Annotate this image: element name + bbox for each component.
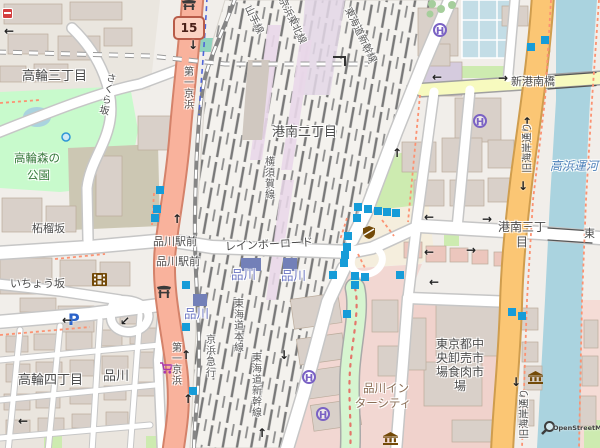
helipad-icon: H (433, 23, 447, 37)
district-label-konan2: 港南二丁目 (272, 126, 337, 141)
oneway-arrow-icon: ← (18, 414, 28, 428)
oneway-arrow-icon: ↑ (257, 426, 267, 440)
district-label-konan3-line1: 港南三丁 (496, 221, 548, 235)
railway-label-tokaido-main: 東海道本線 (231, 298, 243, 353)
bus-stop-icon (392, 209, 400, 217)
shrine-torii-icon (156, 284, 172, 298)
cinema-icon (92, 273, 107, 286)
bus-stop-icon (508, 308, 516, 316)
bus-stop-icon (541, 36, 549, 44)
oneway-arrow-icon: ↑ (172, 212, 182, 226)
oneway-arrow-icon: ↑ (392, 146, 402, 160)
oneway-arrow-icon: ↓ (188, 38, 198, 52)
oneway-arrow-icon: ↓ (518, 179, 528, 193)
bus-stop-icon (527, 43, 535, 51)
intercity-label-line2: ターシティ (352, 397, 414, 410)
market-label-line4: 場 (428, 380, 492, 394)
district-label-takanawa4: 高輪四丁目 (18, 374, 83, 389)
park-label-line1: 高輪森の (14, 152, 60, 165)
bus-stop-icon (151, 214, 159, 222)
street-label-sakurazaka: さくら坂 (96, 71, 116, 116)
bus-stop-icon (341, 251, 349, 259)
oneway-arrow-icon: ← (4, 24, 14, 38)
bus-stop-icon (396, 271, 404, 279)
oneway-arrow-icon: → (482, 212, 492, 226)
oneway-arrow-icon: ← (424, 210, 434, 224)
bus-stop-icon (156, 186, 164, 194)
railway-label-yokosuka: 横須賀線 (262, 156, 274, 200)
street-label-rainbow-road: レインボーロード (225, 237, 314, 254)
bus-stop-icon (351, 272, 359, 280)
museum-icon (528, 371, 543, 384)
street-label-ichozaka: いちょう坂 (10, 278, 65, 291)
bus-stop-icon (374, 207, 382, 215)
bus-stop-icon (329, 271, 337, 279)
no-entry-icon (2, 8, 13, 19)
osm-attribution[interactable]: OpenStreetMap (540, 420, 600, 436)
oneway-arrow-icon: ↓ (511, 375, 521, 389)
market-label-line1: 東京都中 (428, 338, 492, 352)
station-label-shinagawa-jr: 品川 (231, 268, 256, 282)
oneway-arrow-icon: ↓ (279, 348, 289, 362)
bus-stop-icon (383, 208, 391, 216)
shrine-torii-icon (181, 0, 197, 10)
street-label-kyu-kaigan-dori: 旧海岸通り (519, 389, 531, 439)
museum-icon (383, 432, 398, 445)
bus-stop-icon (354, 203, 362, 211)
railway-label-keihin-tohoku: 京浜東北線 (276, 0, 308, 46)
street-label-daiichi-keihin: 第一京浜 (169, 342, 181, 386)
bus-stop-icon (351, 281, 359, 289)
canal-label-takahama: 高浜運河 (550, 160, 598, 174)
market-label-line2: 央卸売市 (428, 352, 492, 366)
railway-label-tokaido-shinkansen: 東海道新幹線 (249, 352, 261, 418)
market-label-line3: 場食肉市 (428, 366, 492, 380)
bus-stop-icon (344, 232, 352, 240)
bus-stop-icon (353, 214, 361, 222)
intercity-label-line1: 品川イン (355, 382, 417, 395)
street-label-higashi: 東 (584, 228, 595, 241)
oneway-arrow-icon: ← (62, 313, 72, 327)
bus-stop-icon (182, 281, 190, 289)
railway-label-tokaido-shinkansen: 東海道新幹線 (342, 6, 379, 65)
railway-label-keikyu: 京浜急行 (203, 334, 215, 378)
bus-stop-icon (518, 312, 526, 320)
bus-stop-icon (182, 323, 190, 331)
bus-stop-icon (340, 259, 348, 267)
police-icon (363, 226, 375, 239)
street-label-shinagawa-ekimae: 品川駅前 (153, 236, 197, 249)
bus-stop-icon (361, 273, 369, 281)
oneway-arrow-icon: ← (432, 70, 442, 84)
station-label-shinagawa-keikyu: 品川 (184, 307, 209, 321)
district-label-takanawa3: 高輪三丁目 (22, 70, 87, 85)
railway-label-yamanote: 山手線 (242, 4, 265, 36)
helipad-icon: H (302, 370, 316, 384)
street-label-kyu-kaigan-dori: 旧海岸通り (522, 123, 534, 173)
bus-stop-icon (153, 205, 161, 213)
street-label-shinagawa-ekimae: 品川駅前 (156, 256, 200, 269)
park-label-line2: 公園 (27, 169, 50, 182)
street-label-shinkonanbashi: 新港南橋 (511, 76, 555, 89)
bus-stop-icon (343, 243, 351, 251)
map-canvas[interactable]: 15 P H H H H ← ↓ ↑ ↑ ↑ ← → ← → ← (0, 0, 600, 448)
oneway-arrow-icon: → (466, 243, 476, 257)
oneway-arrow-icon: ← (429, 275, 439, 289)
oneway-arrow-icon: ↑ (181, 348, 191, 362)
oneway-arrow-icon: ← (424, 245, 434, 259)
route-15-shield: 15 (173, 16, 205, 40)
street-label-daiichi-keihin: 第一京浜 (181, 66, 193, 110)
district-label-konan3-line2: 目 (496, 236, 548, 250)
oneway-arrow-icon: → (498, 71, 508, 85)
street-label-zakurozaka: 柘榴坂 (32, 223, 65, 236)
district-label-shinagawa: 品川 (103, 370, 129, 385)
helipad-icon: H (316, 407, 330, 421)
oneway-arrow-icon: ↑ (183, 392, 193, 406)
bus-stop-icon (364, 205, 372, 213)
helipad-icon: H (473, 114, 487, 128)
bus-stop-icon (343, 310, 351, 318)
osm-attribution-text: OpenStreetMap (553, 424, 600, 432)
station-label-shinagawa-jr: 品川 (281, 269, 306, 283)
oneway-arrow-icon: ↙ (120, 314, 130, 328)
